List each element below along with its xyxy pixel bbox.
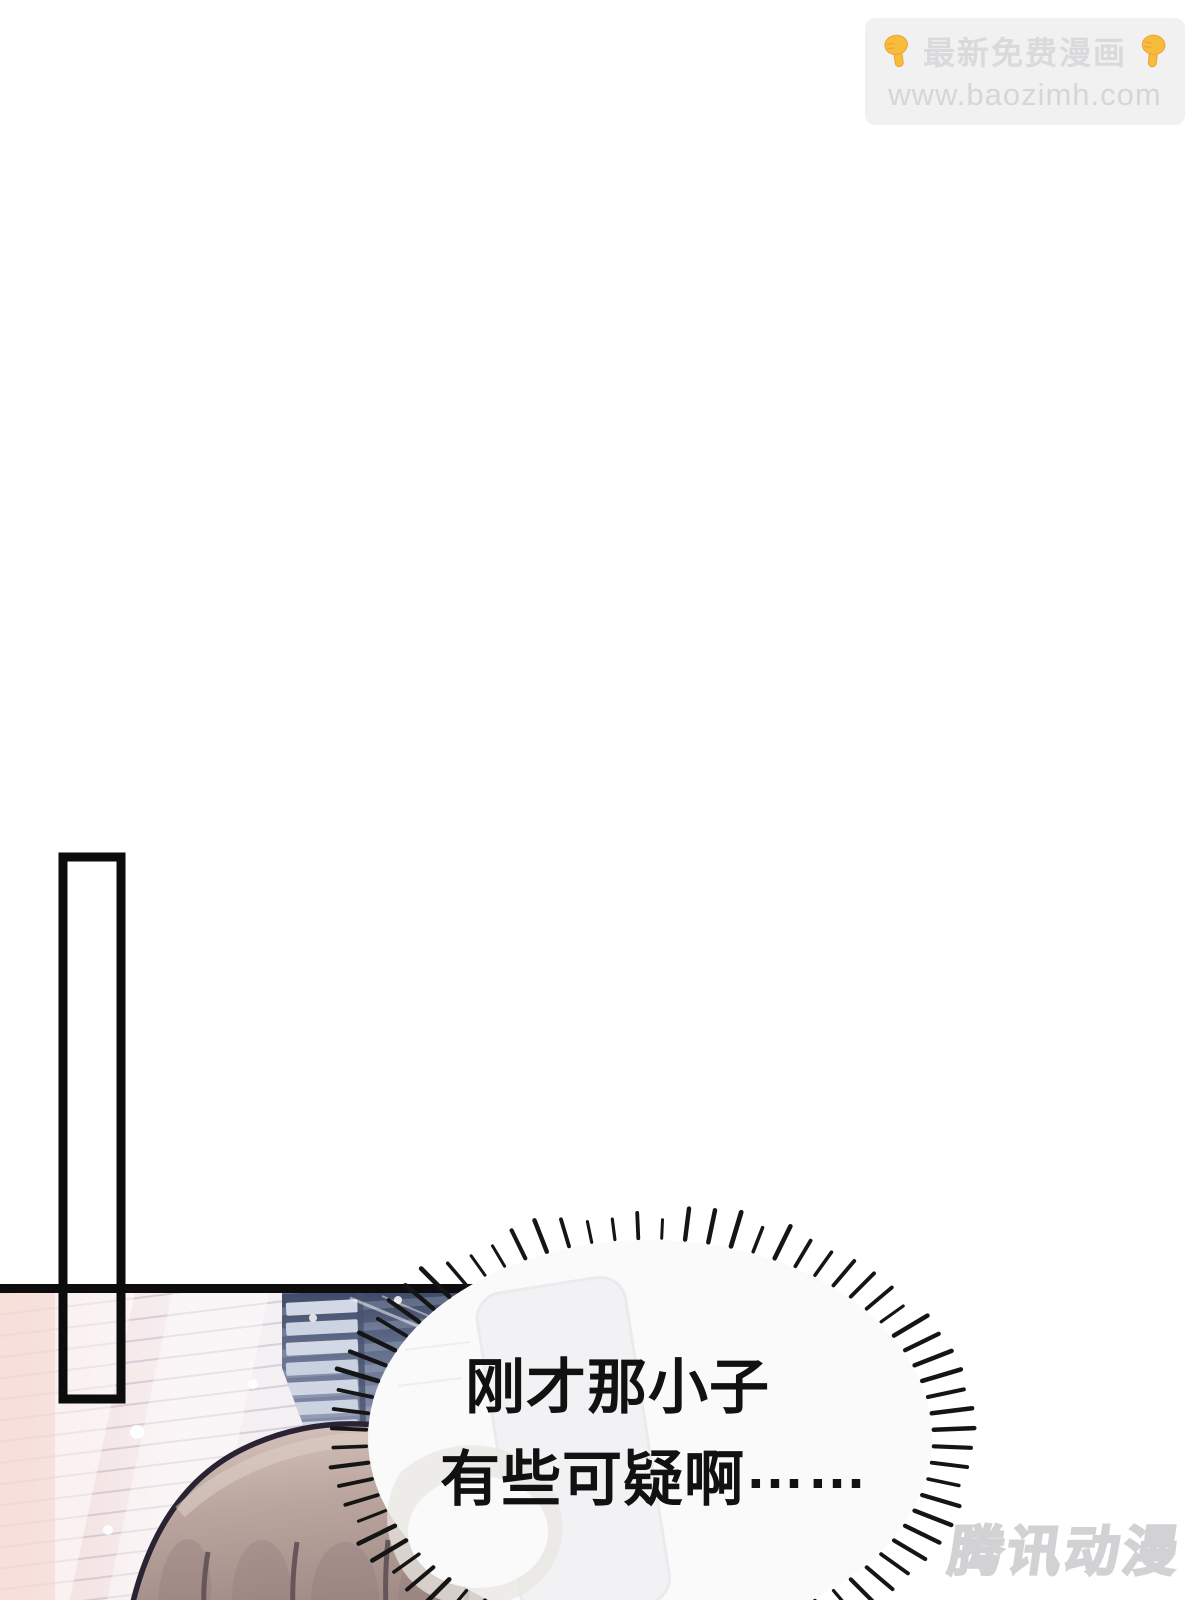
speech-line-1: 刚才那小子 bbox=[465, 1348, 869, 1428]
promo-badge-title: 最新免费漫画 bbox=[923, 28, 1127, 74]
promo-badge-title-row: 最新免费漫画 bbox=[865, 28, 1185, 74]
comic-page: 最新免费漫画 www.baozimh.com bbox=[0, 0, 1200, 1600]
point-down-hand-icon bbox=[877, 31, 918, 72]
publisher-watermark: 腾讯动漫 bbox=[944, 1507, 1187, 1586]
promo-watermark-badge: 最新免费漫画 www.baozimh.com bbox=[865, 18, 1185, 125]
speech-line-2-text: 有些可疑啊 bbox=[440, 1446, 745, 1513]
speech-line-2-ellipsis: …… bbox=[745, 1434, 869, 1501]
promo-badge-url: www.baozimh.com bbox=[865, 77, 1185, 113]
speech-line-2: 有些可疑啊…… bbox=[440, 1428, 869, 1520]
point-down-hand-icon bbox=[1133, 31, 1173, 71]
speech-bubble-text: 刚才那小子 有些可疑啊…… bbox=[440, 1348, 869, 1520]
